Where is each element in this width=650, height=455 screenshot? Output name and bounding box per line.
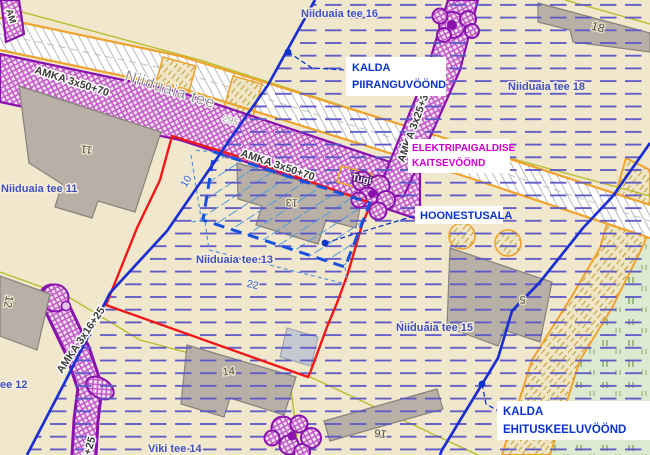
callout-kalda-piiranguvoond: KALDA PIIRANGUVÖÖND <box>346 57 446 96</box>
top-mast <box>433 9 480 43</box>
building-number-12: 12 <box>1 294 15 308</box>
street-label-niiduaia-15: Niiduaia tee 15 <box>396 322 473 334</box>
building-number-11: 11 <box>80 142 93 155</box>
callout-hoonestusala: HOONESTUSALA <box>415 206 512 224</box>
building-number-13: 13 <box>285 196 298 209</box>
plan-canvas: 10 22 AMKA 3x50+70 AMKA 3x50+70 AMKA 3x2… <box>0 0 650 455</box>
callout-keeld-line1: KALDA <box>503 406 543 418</box>
building-number-16: 16 <box>374 426 388 439</box>
street-label-niiduaia-11: Niiduaia tee 11 <box>1 183 77 195</box>
building-number-5: 5 <box>519 293 526 305</box>
building-number-14: 14 <box>222 366 235 379</box>
street-label-niiduaia-18: Niiduaia tee 18 <box>508 81 585 93</box>
street-label-niiduaia-13: Niiduaia tee 13 <box>196 254 273 266</box>
callout-piirang-line2: PIIRANGUVÖÖND <box>352 78 446 91</box>
callout-piirang-line1: KALDA <box>352 62 391 74</box>
street-label-tee-12: ee 12 <box>0 379 28 391</box>
callout-hoonestus-line1: HOONESTUSALA <box>420 210 512 222</box>
detail-plan-map: 10 22 AMKA 3x50+70 AMKA 3x50+70 AMKA 3x2… <box>0 0 650 455</box>
callout-elektripaigaldise-kaitsevoond: ELEKTRIPAIGALDISE KAITSEVÖÖND <box>408 139 515 173</box>
callout-kalda-ehituskeeluvoond: KALDA EHITUSKEELUVÖÖND <box>497 401 650 440</box>
street-label-niiduaia-16: Niiduaia tee 16 <box>301 8 378 20</box>
callout-kaitse-line2: KAITSEVÖÖND <box>412 156 485 169</box>
callout-kaitse-line1: ELEKTRIPAIGALDISE <box>412 143 515 154</box>
cable-end-dot <box>62 302 71 311</box>
callout-keeld-line2: EHITUSKEELUVÖÖND <box>503 423 626 436</box>
street-label-viki-14: Viki tee 14 <box>148 443 202 455</box>
